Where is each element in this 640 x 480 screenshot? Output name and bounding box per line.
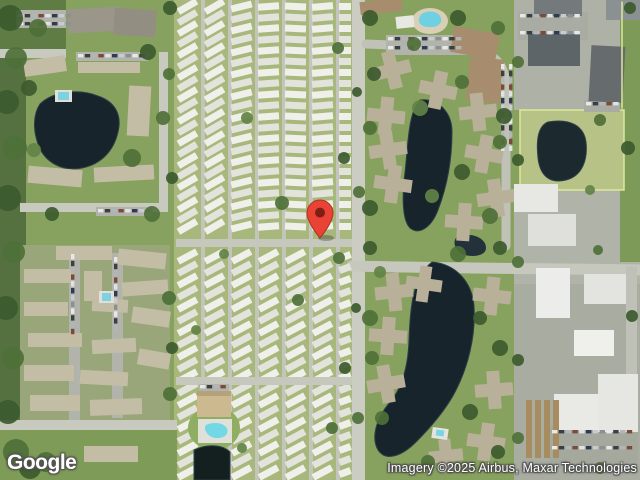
pin-hole: [315, 208, 325, 218]
map-viewport: Google Imagery ©2025 Airbus, Maxar Techn…: [0, 0, 640, 480]
imagery-attribution: Imagery ©2025 Airbus, Maxar Technologies: [387, 461, 637, 475]
google-logo[interactable]: Google: [7, 451, 76, 475]
location-pin-marker[interactable]: [296, 194, 344, 242]
pin-body: [307, 200, 333, 238]
